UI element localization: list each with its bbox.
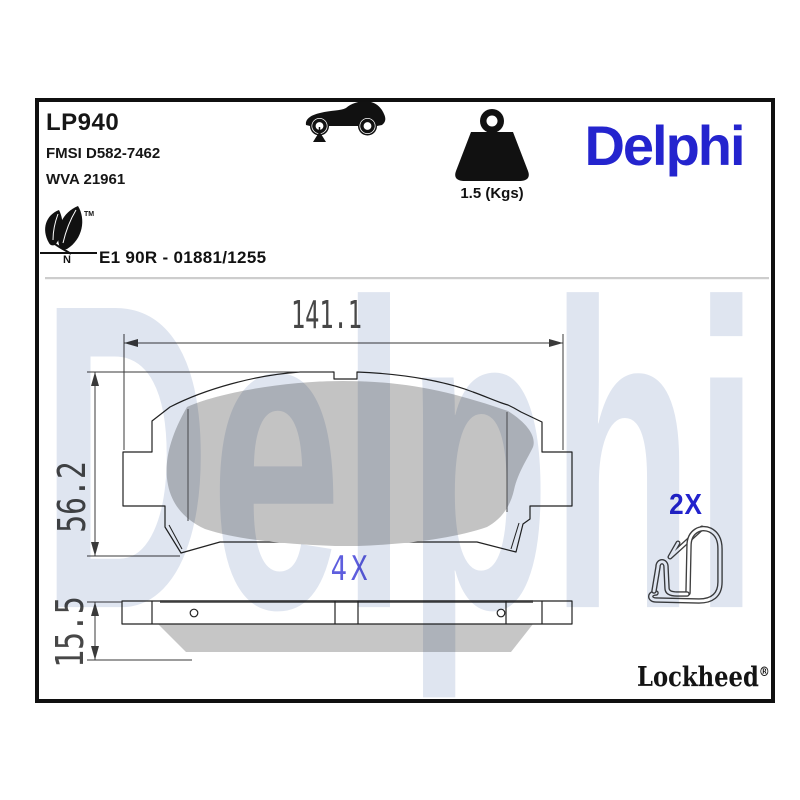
wva-reference: WVA 21961	[46, 171, 125, 188]
fmsi-reference: FMSI D582-7462	[46, 145, 160, 162]
weight-icon	[455, 109, 529, 181]
height-dimension-label: 56.2	[54, 450, 90, 544]
pad-edge-view	[122, 601, 572, 652]
weight-value: 1.5 (Kgs)	[432, 185, 552, 202]
lockheed-logo-text: Lockheed	[637, 662, 759, 693]
lockheed-logo: Lockheed®	[637, 662, 770, 693]
pad-front-view	[123, 372, 572, 553]
pad-quantity-label: 4X	[311, 551, 391, 587]
width-dimension-label: 141.1	[291, 297, 353, 333]
eco-leaves-icon	[45, 206, 82, 254]
car-side-icon	[306, 101, 385, 142]
delphi-logo: Delphi	[576, 116, 752, 176]
homologation-code: E1 90R - 01881/1255	[99, 248, 266, 268]
registered-mark: ®	[759, 665, 770, 680]
eco-icon-trademark: TM	[84, 211, 94, 218]
eco-icon-letter: N	[52, 254, 82, 266]
thickness-dimension-label: 15.5	[52, 585, 88, 679]
header-divider	[45, 277, 769, 280]
friction-material	[167, 381, 534, 546]
product-sku: LP940	[46, 109, 119, 137]
clip-quantity-label: 2X	[641, 489, 731, 521]
edge-friction-material	[158, 624, 533, 652]
product-sheet-page: LP940 FMSI D582-7462 WVA 21961 Delphi 1.…	[0, 0, 800, 800]
retaining-clip-drawing	[651, 528, 720, 601]
